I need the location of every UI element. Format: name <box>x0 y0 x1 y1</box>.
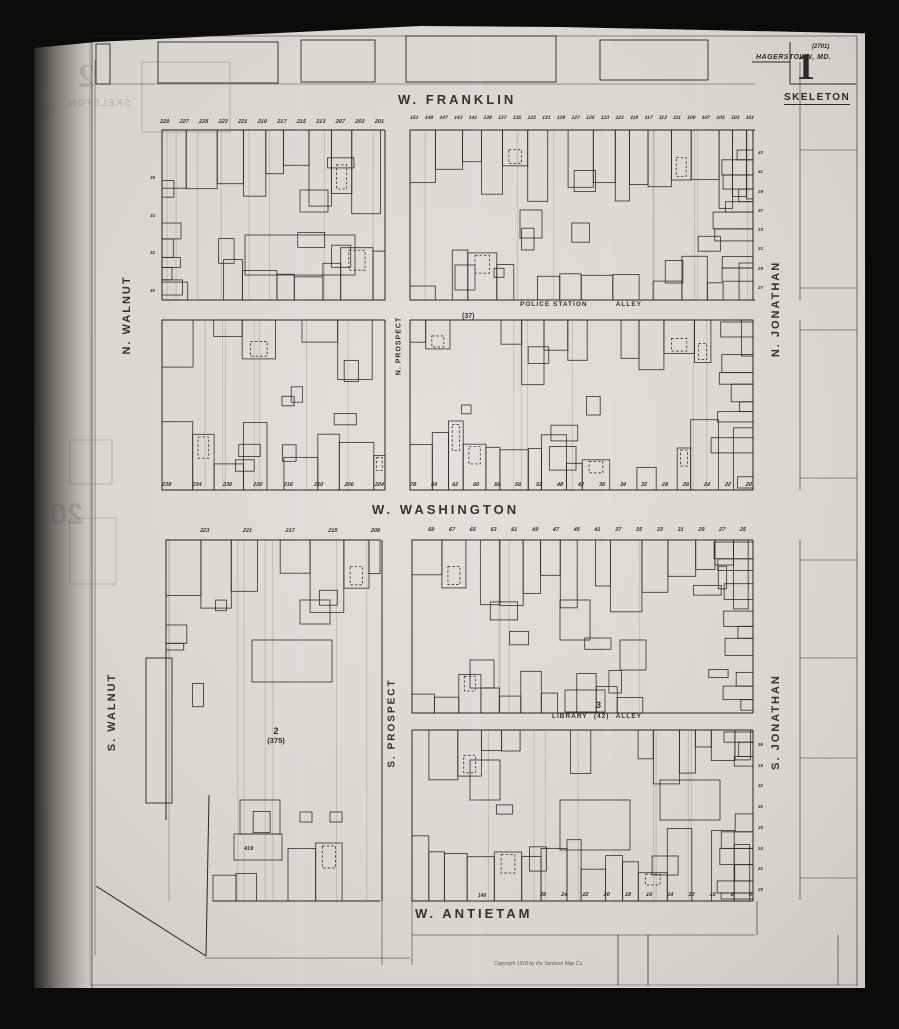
house-number: 22 <box>724 482 731 488</box>
house-number: 113 <box>658 115 667 121</box>
house-number: 78 <box>410 482 417 488</box>
house-number: 210 <box>314 482 324 488</box>
house-number: 135 <box>512 115 521 121</box>
house-numbers-jonathan-north: 4341393733312927 <box>758 150 763 290</box>
house-number: 6 <box>748 892 752 898</box>
house-number: 47 <box>552 527 559 533</box>
house-numbers-washington-north-east: 7864626058565248423634322826242220 <box>410 482 753 488</box>
house-number: 28 <box>661 482 668 488</box>
house-number: 45 <box>573 527 580 533</box>
house-number: 149 <box>424 115 433 121</box>
police-alley-block-ref: (37) <box>462 313 474 320</box>
house-number: 217 <box>285 528 295 534</box>
house-number: 101 <box>745 115 754 121</box>
house-number: 16 <box>646 892 653 898</box>
ghost-skeleton-text: SKELETON <box>68 98 130 109</box>
street-w-washington: W. WASHINGTON <box>372 502 519 517</box>
block-ref: (375) <box>256 736 296 745</box>
house-number: 31 <box>677 527 684 533</box>
building-ref-419: 419 <box>244 846 253 852</box>
house-number: 36 <box>758 742 763 747</box>
house-number: 26 <box>540 892 547 898</box>
house-number: 143 <box>454 115 463 121</box>
house-numbers-franklin-west: 229227225223221219217215213207203201 <box>160 119 385 125</box>
house-number: 22 <box>758 866 763 871</box>
house-number: 24 <box>703 482 710 488</box>
house-number: 35 <box>635 527 642 533</box>
house-number: 216 <box>283 482 293 488</box>
house-number: 56 <box>515 482 522 488</box>
house-numbers-washington-north-west: 238234230220216210206204 <box>162 482 385 488</box>
house-number: 22 <box>582 892 589 898</box>
street-n-prospect: N. PROSPECT <box>396 317 403 375</box>
house-number: 227 <box>179 119 189 125</box>
house-number: 109 <box>687 115 696 121</box>
house-numbers-walnut-east: 36343230 <box>150 175 155 293</box>
house-number: 219 <box>257 119 267 125</box>
house-number: 147 <box>439 115 448 121</box>
house-number: 33 <box>758 227 763 232</box>
house-number: 43 <box>758 150 763 155</box>
house-number: 34 <box>758 763 763 768</box>
sheet-number: 1 <box>796 48 815 86</box>
alley-name-left: POLICE STATION <box>520 301 588 308</box>
house-number: 58 <box>494 482 501 488</box>
house-number: 60 <box>473 482 480 488</box>
house-numbers-jonathan-south: 3634323026242220 <box>758 742 763 892</box>
house-number: 223 <box>218 119 228 125</box>
house-number: 229 <box>160 119 170 125</box>
house-number: 33 <box>656 527 663 533</box>
house-number: 217 <box>277 119 287 125</box>
street-w-franklin: W. FRANKLIN <box>398 92 516 107</box>
house-number: 139 <box>483 115 492 121</box>
house-number: 121 <box>615 115 624 121</box>
house-number: 30 <box>758 804 763 809</box>
house-number: 32 <box>758 783 763 788</box>
house-number: 36 <box>598 482 605 488</box>
house-number: 14 <box>667 892 674 898</box>
house-number: 29 <box>758 266 763 271</box>
house-number: 141 <box>468 115 477 121</box>
copyright-line: Copyright 1918 by the Sanborn Map Co. <box>494 961 584 967</box>
house-number: 103 <box>731 115 740 121</box>
house-number: 65 <box>469 527 476 533</box>
house-numbers-washington-south-west: 223221217215209 <box>200 528 381 534</box>
ghost-sheet-number: 2 <box>78 58 95 96</box>
house-number: 221 <box>242 528 252 534</box>
house-number: 27 <box>758 285 763 290</box>
house-number: 137 <box>498 115 507 121</box>
house-number: 8 <box>730 892 734 898</box>
house-number: 230 <box>222 482 232 488</box>
house-number: 221 <box>238 119 248 125</box>
map-type-label: SKELETON <box>784 92 850 105</box>
house-number: 67 <box>448 527 455 533</box>
house-number: 27 <box>719 527 726 533</box>
street-n-jonathan: N. JONATHAN <box>770 261 782 357</box>
house-number: 201 <box>374 119 384 125</box>
house-number: 26 <box>758 825 763 830</box>
house-number: 220 <box>253 482 263 488</box>
ghost-page-number: 20 <box>50 498 83 532</box>
alley-block-ref: (42) <box>594 713 610 720</box>
house-number: 127 <box>571 115 580 121</box>
street-s-prospect: S. PROSPECT <box>387 678 398 767</box>
sw-block-reference: 2 (375) <box>256 726 296 745</box>
house-number: 42 <box>577 482 584 488</box>
city-title: HAGERSTOWN, MD. <box>756 54 831 61</box>
house-number: 234 <box>192 482 202 488</box>
house-number: 32 <box>640 482 647 488</box>
house-number: 34 <box>150 213 155 218</box>
house-number: 41 <box>758 169 763 174</box>
antietam-single-number: 140 <box>478 893 486 899</box>
house-number: 123 <box>600 115 609 121</box>
house-number: 151 <box>410 115 419 121</box>
house-number: 133 <box>527 115 536 121</box>
house-number: 105 <box>716 115 725 121</box>
street-w-antietam: W. ANTIETAM <box>415 906 533 921</box>
street-s-walnut: S. WALNUT <box>106 673 118 752</box>
house-number: 12 <box>688 892 695 898</box>
house-number: 24 <box>561 892 568 898</box>
house-number: 52 <box>535 482 542 488</box>
house-number: 37 <box>615 527 622 533</box>
house-number: 223 <box>200 528 210 534</box>
block-number: 2 <box>256 726 296 736</box>
house-number: 39 <box>758 189 763 194</box>
house-number: 215 <box>296 119 306 125</box>
house-number: 18 <box>624 892 631 898</box>
house-number: 37 <box>758 208 763 213</box>
house-number: 119 <box>630 115 639 121</box>
house-numbers-franklin-east: 1511491471431411391371351331311291271251… <box>410 115 755 121</box>
house-number: 48 <box>556 482 563 488</box>
library-alley-block-num: 3 <box>596 700 601 710</box>
house-number: 24 <box>758 846 763 851</box>
house-number: 26 <box>682 482 689 488</box>
house-numbers-antietam-north: 26242220181614121086 <box>540 892 753 898</box>
house-number: 20 <box>758 887 763 892</box>
scanned-sanborn-map-sheet: 2 SKELETON (2) 20 (2701) HAGERSTOWN, MD.… <box>0 0 899 1029</box>
house-number: 203 <box>355 119 365 125</box>
house-number: 69 <box>428 527 435 533</box>
house-number: 207 <box>335 119 345 125</box>
house-number: 117 <box>644 115 653 121</box>
alley-name-left: LIBRARY <box>552 713 588 720</box>
house-number: 225 <box>199 119 209 125</box>
house-numbers-washington-south-east: 69676563614947454137353331292725 <box>428 527 747 533</box>
house-number: 206 <box>344 482 354 488</box>
police-station-alley-label: POLICE STATION ALLEY <box>520 301 642 308</box>
house-number: 31 <box>758 246 763 251</box>
house-number: 129 <box>556 115 565 121</box>
house-number: 63 <box>490 527 497 533</box>
house-number: 213 <box>316 119 326 125</box>
alley-name-right: ALLEY <box>616 713 642 720</box>
house-number: 29 <box>698 527 705 533</box>
library-alley-label: LIBRARY (42) ALLEY <box>552 713 642 720</box>
alley-name-right: ALLEY <box>616 301 642 308</box>
street-s-jonathan: S. JONATHAN <box>770 674 782 770</box>
house-number: 238 <box>162 482 172 488</box>
house-number: 10 <box>709 892 716 898</box>
house-number: 36 <box>150 175 155 180</box>
house-number: 107 <box>701 115 710 121</box>
house-number: 34 <box>619 482 626 488</box>
house-number: 30 <box>150 288 155 293</box>
label-layer: 2 SKELETON (2) 20 (2701) HAGERSTOWN, MD.… <box>0 0 899 1029</box>
house-number: 25 <box>739 527 746 533</box>
house-number: 209 <box>370 528 380 534</box>
house-number: 62 <box>452 482 459 488</box>
house-number: 111 <box>673 115 681 121</box>
house-number: 215 <box>328 528 338 534</box>
house-number: 20 <box>603 892 610 898</box>
house-number: 20 <box>745 482 752 488</box>
house-number: 131 <box>542 115 551 121</box>
house-number: 61 <box>511 527 518 533</box>
house-number: 64 <box>431 482 438 488</box>
ghost-ref: (2) <box>42 104 55 116</box>
street-n-walnut: N. WALNUT <box>121 275 133 354</box>
house-number: 204 <box>374 482 384 488</box>
house-number: 49 <box>531 527 538 533</box>
house-number: 125 <box>586 115 595 121</box>
house-number: 41 <box>594 527 601 533</box>
house-number: 32 <box>150 250 155 255</box>
